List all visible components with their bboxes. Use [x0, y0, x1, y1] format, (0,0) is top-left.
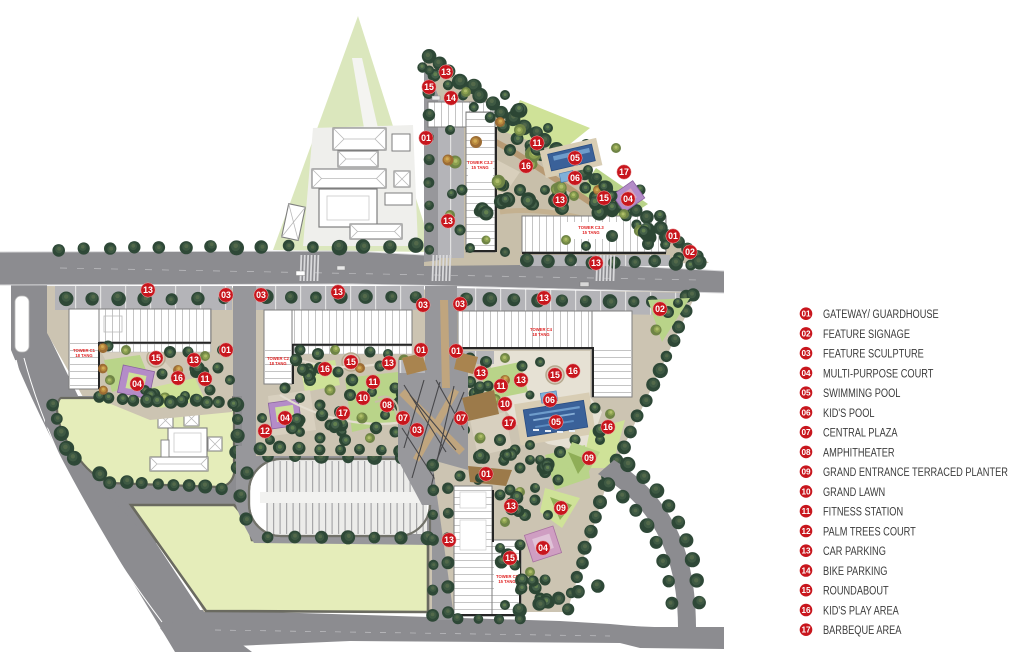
svg-text:17: 17	[504, 418, 514, 428]
svg-text:08: 08	[801, 448, 811, 457]
svg-text:PALM TREES COURT: PALM TREES COURT	[823, 525, 916, 539]
svg-text:15: 15	[801, 586, 811, 595]
svg-text:07: 07	[801, 428, 811, 437]
svg-text:15 TANG: 15 TANG	[471, 165, 488, 170]
svg-text:18 TANG: 18 TANG	[75, 353, 92, 358]
svg-text:05: 05	[570, 153, 580, 163]
svg-text:FEATURE SCULPTURE: FEATURE SCULPTURE	[823, 347, 924, 361]
svg-text:13: 13	[539, 293, 549, 303]
svg-text:13: 13	[555, 195, 565, 205]
svg-text:08: 08	[382, 400, 392, 410]
svg-text:17: 17	[338, 408, 348, 418]
svg-text:16: 16	[801, 606, 811, 615]
svg-text:AMPHITHEATER: AMPHITHEATER	[823, 446, 895, 460]
svg-text:CENTRAL PLAZA: CENTRAL PLAZA	[823, 426, 898, 440]
svg-text:18 TANG: 18 TANG	[532, 332, 549, 337]
svg-text:07: 07	[456, 413, 466, 423]
svg-text:02: 02	[685, 247, 695, 257]
svg-text:15: 15	[151, 353, 161, 363]
svg-text:KID'S POOL: KID'S POOL	[823, 407, 875, 421]
svg-text:11: 11	[368, 377, 377, 387]
svg-text:13: 13	[591, 258, 601, 268]
svg-text:12: 12	[801, 527, 811, 536]
svg-text:04: 04	[538, 543, 548, 553]
svg-text:13: 13	[189, 355, 199, 365]
svg-text:03: 03	[418, 300, 428, 310]
svg-text:13: 13	[506, 501, 516, 511]
svg-text:02: 02	[655, 304, 665, 314]
svg-text:GATEWAY/ GUARDHOUSE: GATEWAY/ GUARDHOUSE	[823, 308, 939, 322]
svg-text:13: 13	[444, 535, 454, 545]
svg-text:04: 04	[132, 379, 142, 389]
svg-text:04: 04	[623, 194, 633, 204]
svg-text:09: 09	[584, 453, 594, 463]
svg-text:15: 15	[599, 193, 609, 203]
svg-text:16: 16	[603, 422, 613, 432]
svg-text:03: 03	[256, 290, 266, 300]
svg-text:06: 06	[570, 173, 580, 183]
svg-text:11: 11	[200, 374, 209, 384]
svg-text:01: 01	[481, 469, 491, 479]
svg-text:13: 13	[441, 67, 451, 77]
svg-text:FITNESS STATION: FITNESS STATION	[823, 505, 903, 519]
svg-text:MULTI-PURPOSE COURT: MULTI-PURPOSE COURT	[823, 367, 934, 381]
svg-text:10: 10	[500, 399, 510, 409]
svg-text:16: 16	[568, 366, 578, 376]
svg-text:13: 13	[143, 285, 153, 295]
svg-text:03: 03	[455, 299, 465, 309]
svg-text:09: 09	[556, 503, 566, 513]
svg-text:01: 01	[416, 345, 426, 355]
svg-text:GRAND ENTRANCE TERRACED PLANTE: GRAND ENTRANCE TERRACED PLANTER	[823, 466, 1008, 480]
svg-text:17: 17	[619, 167, 629, 177]
svg-text:16: 16	[173, 373, 183, 383]
svg-text:04: 04	[280, 413, 290, 423]
svg-text:07: 07	[398, 413, 408, 423]
svg-text:16: 16	[320, 364, 330, 374]
svg-text:01: 01	[668, 231, 678, 241]
svg-text:01: 01	[451, 346, 461, 356]
svg-text:13: 13	[333, 287, 343, 297]
svg-text:06: 06	[545, 395, 555, 405]
svg-text:FEATURE SIGNAGE: FEATURE SIGNAGE	[823, 328, 910, 342]
svg-text:06: 06	[801, 408, 811, 417]
svg-text:02: 02	[801, 329, 811, 338]
svg-text:13: 13	[801, 547, 811, 556]
svg-text:CAR PARKING: CAR PARKING	[823, 545, 886, 559]
svg-text:15: 15	[346, 357, 356, 367]
svg-text:13: 13	[384, 358, 394, 368]
svg-text:09: 09	[801, 468, 811, 477]
svg-text:05: 05	[801, 389, 811, 398]
svg-text:05: 05	[551, 417, 561, 427]
svg-text:14: 14	[801, 566, 811, 575]
svg-text:17: 17	[801, 626, 811, 635]
svg-text:18 TANG: 18 TANG	[269, 361, 286, 366]
svg-text:15 TANG: 15 TANG	[498, 579, 515, 584]
svg-text:11: 11	[802, 507, 811, 516]
svg-text:03: 03	[801, 349, 811, 358]
svg-text:14: 14	[446, 93, 456, 103]
svg-text:10: 10	[358, 393, 368, 403]
svg-text:BIKE PARKING: BIKE PARKING	[823, 565, 887, 579]
svg-text:04: 04	[801, 369, 811, 378]
svg-text:10: 10	[801, 487, 811, 496]
svg-text:GRAND LAWN: GRAND LAWN	[823, 486, 885, 500]
svg-text:16: 16	[521, 161, 531, 171]
svg-text:11: 11	[496, 381, 505, 391]
svg-text:15 TANG: 15 TANG	[582, 230, 599, 235]
svg-text:03: 03	[221, 290, 231, 300]
svg-text:SWIMMING POOL: SWIMMING POOL	[823, 387, 900, 401]
svg-text:ROUNDABOUT: ROUNDABOUT	[823, 584, 889, 598]
svg-text:KID'S PLAY AREA: KID'S PLAY AREA	[823, 604, 899, 618]
svg-text:13: 13	[476, 368, 486, 378]
svg-text:01: 01	[801, 310, 811, 319]
svg-text:03: 03	[412, 425, 422, 435]
svg-text:01: 01	[421, 133, 431, 143]
svg-text:BARBEQUE AREA: BARBEQUE AREA	[823, 624, 902, 638]
svg-text:15: 15	[550, 370, 560, 380]
svg-text:15: 15	[505, 553, 515, 563]
svg-text:12: 12	[260, 426, 270, 436]
svg-text:15: 15	[424, 82, 434, 92]
svg-text:13: 13	[516, 375, 526, 385]
svg-text:11: 11	[532, 138, 541, 148]
svg-text:13: 13	[443, 216, 453, 226]
svg-text:01: 01	[221, 345, 231, 355]
